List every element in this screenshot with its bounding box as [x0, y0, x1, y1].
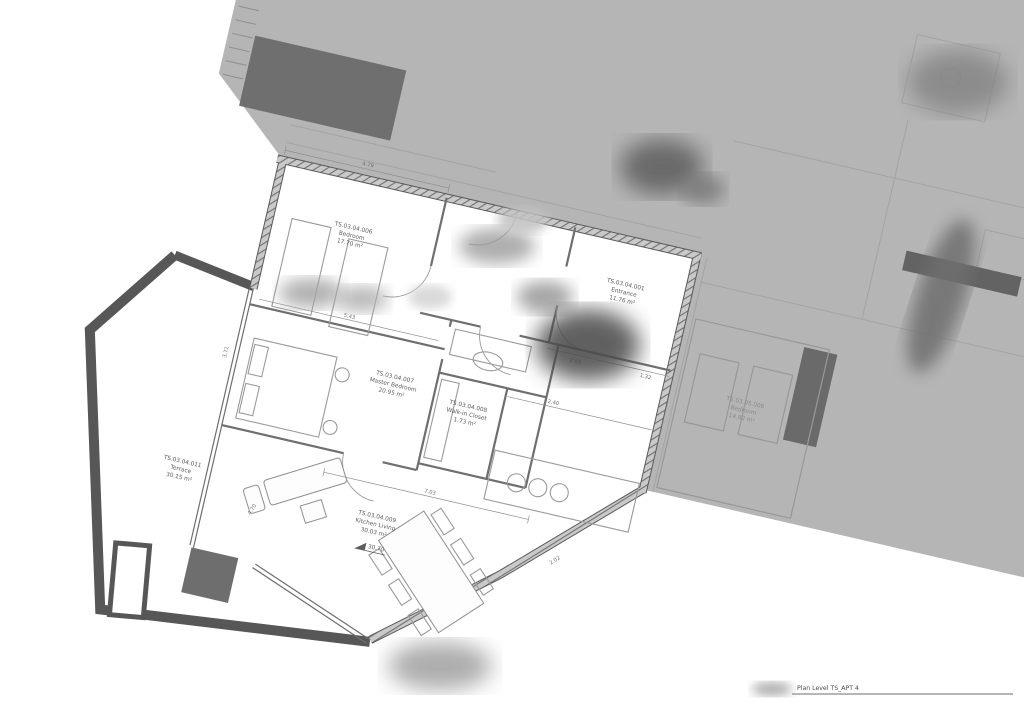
smudge — [752, 682, 792, 696]
smudge — [459, 228, 535, 264]
smudge — [388, 642, 492, 690]
sheet-title-block: Plan Level TS_APT 4 — [792, 685, 1013, 694]
smudge-dark — [536, 309, 640, 381]
smudge — [408, 285, 452, 309]
dimension-bottom-right: 2.02 — [549, 555, 562, 566]
smudge — [336, 286, 388, 312]
smudge — [908, 50, 1008, 114]
terrace-planter — [109, 543, 149, 618]
floor-plan-canvas: TS.03.05.006 Bedroom 14.92 m² — [0, 0, 1024, 725]
smudge — [497, 207, 549, 233]
smudge — [681, 174, 725, 204]
dimension-value: 2.02 — [549, 555, 562, 566]
smudge — [517, 281, 573, 313]
sheet-title: Plan Level TS_APT 4 — [797, 685, 859, 692]
smudge — [279, 278, 343, 308]
rotated-plan: TS.03.05.006 Bedroom 14.92 m² — [28, 0, 1024, 725]
floor-plan-screenshot: TS.03.05.006 Bedroom 14.92 m² — [0, 0, 1024, 725]
